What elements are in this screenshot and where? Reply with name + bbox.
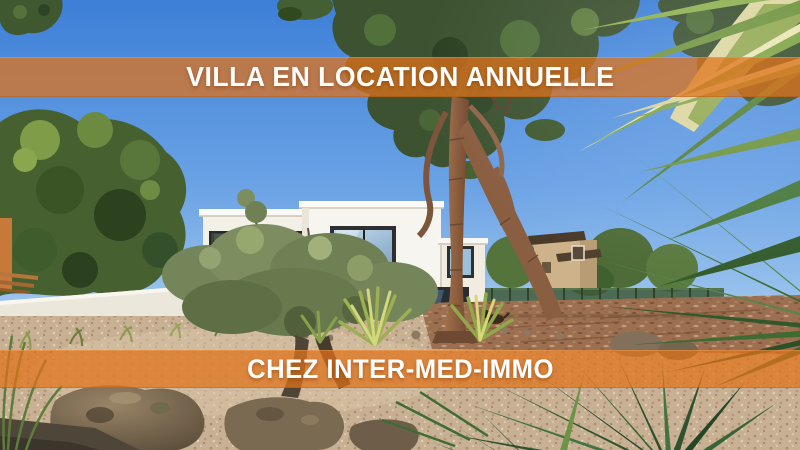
top-banner: VILLA EN LOCATION ANNUELLE <box>0 57 800 97</box>
top-banner-text: VILLA EN LOCATION ANNUELLE <box>186 61 614 93</box>
sun-glow <box>420 0 800 280</box>
real-estate-photo: VILLA EN LOCATION ANNUELLE CHEZ INTER-ME… <box>0 0 800 450</box>
bottom-banner-text: CHEZ INTER-MED-IMMO <box>247 354 554 385</box>
bottom-banner: CHEZ INTER-MED-IMMO <box>0 350 800 388</box>
